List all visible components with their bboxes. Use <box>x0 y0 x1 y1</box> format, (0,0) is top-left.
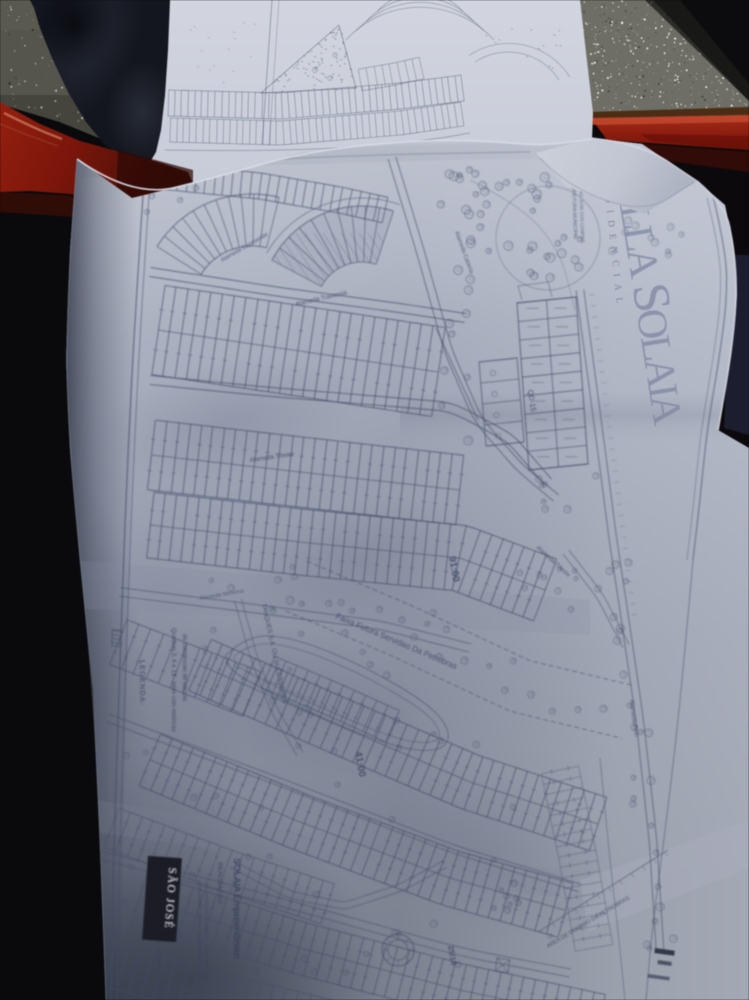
svg-text:de construcao de edicula.: de construcao de edicula. <box>181 634 187 703</box>
svg-text:NA MATRICULA N. 230.072 - CART: NA MATRICULA N. 230.072 - CARTA SEBRGH <box>204 884 209 979</box>
svg-text:LEGENDA:: LEGENDA: <box>138 660 147 706</box>
svg-text:REALIZACAO:: REALIZACAO: <box>216 862 223 905</box>
svg-text:Quadras 3, 6 e 13 - lotes com: Quadras 3, 6 e 13 - lotes com restricao <box>170 628 176 732</box>
svg-text:construtora e incorporadora lt: construtora e incorporadora ltda <box>157 948 162 1000</box>
svg-text:LOTEAMENTO REGISTRADO SOB o N.: LOTEAMENTO REGISTRADO SOB o N. 9 AV. <box>196 880 202 980</box>
svg-text:SOLAIA Empreendimen: SOLAIA Empreendimen <box>231 858 242 959</box>
